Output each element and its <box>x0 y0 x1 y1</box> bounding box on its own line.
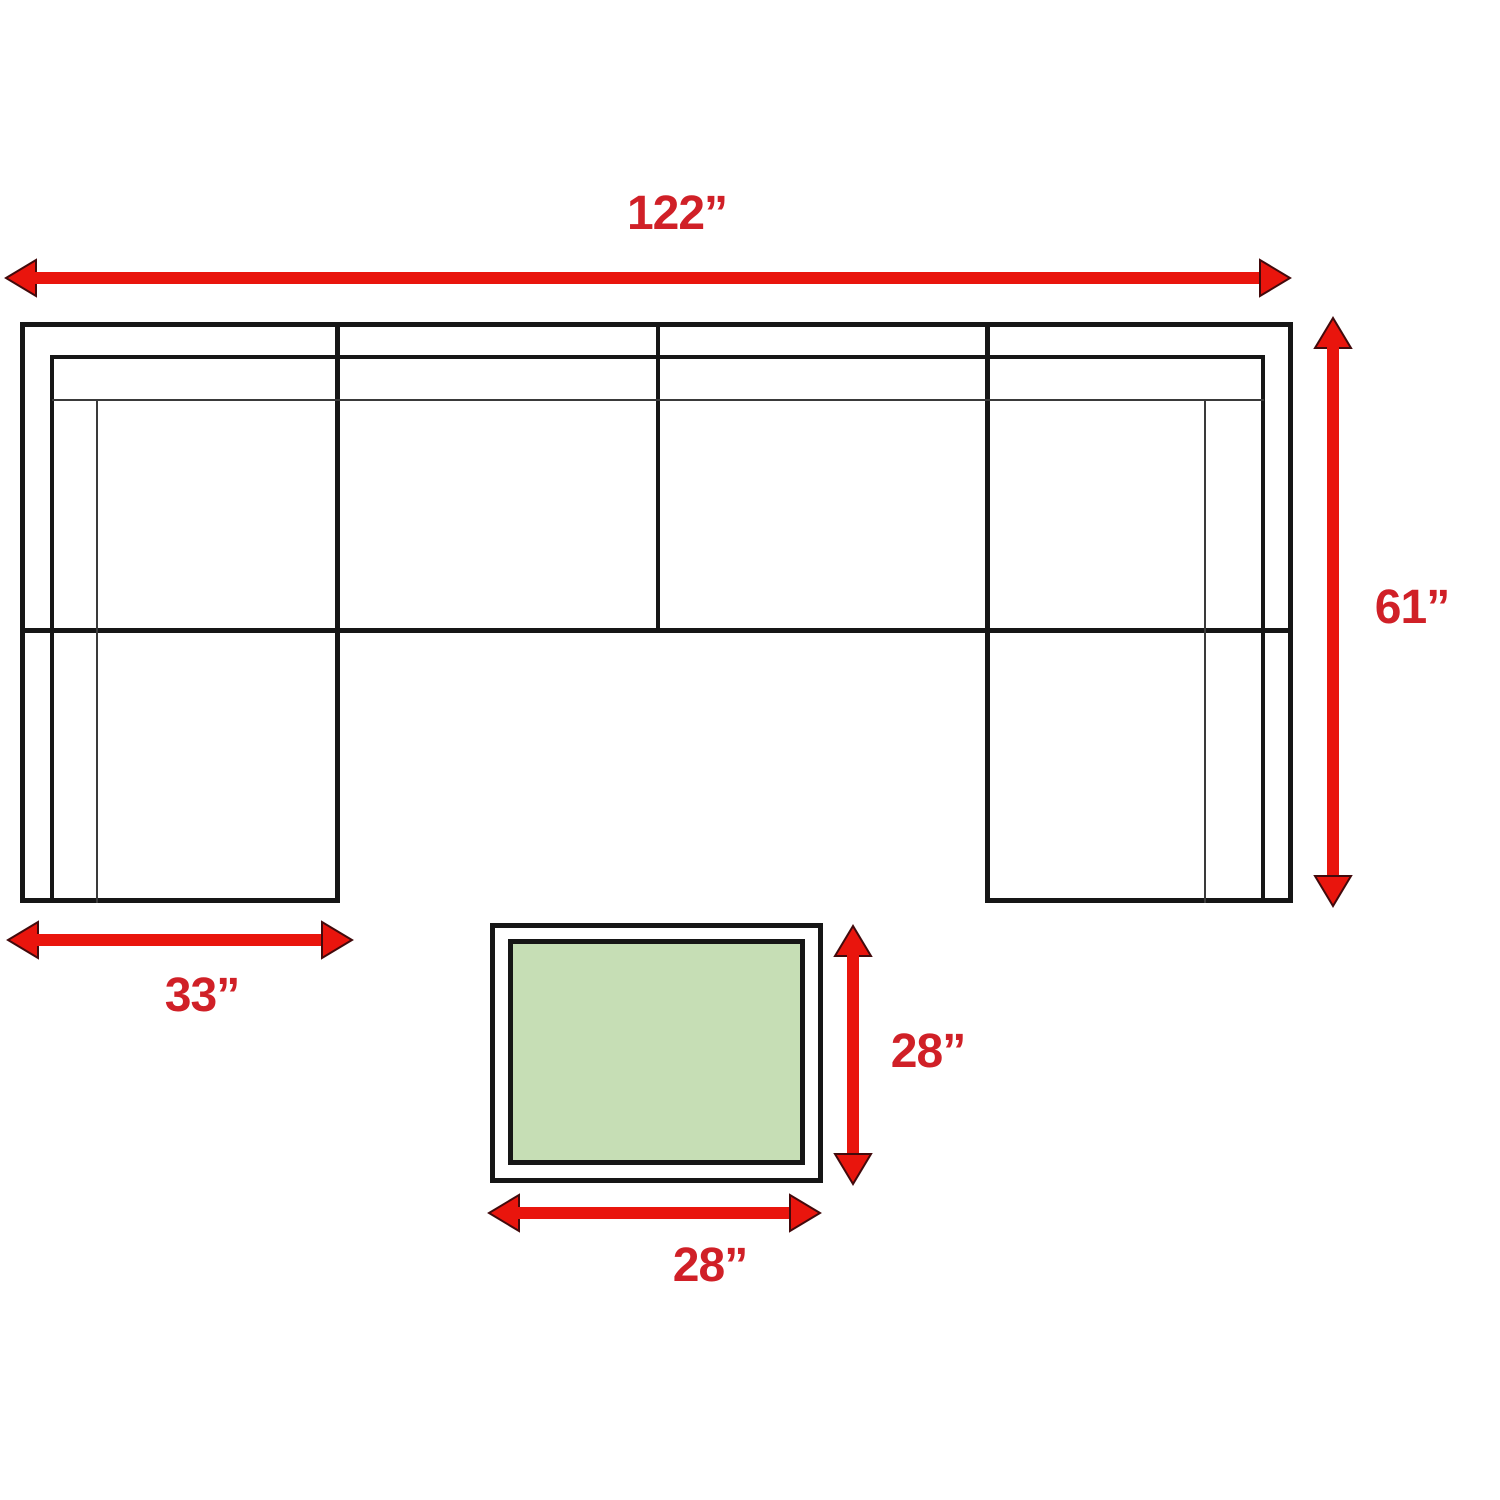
arrow-shaft <box>30 272 1266 284</box>
sofa-width-label: 122” <box>597 190 757 238</box>
sofa-width-arrow <box>4 256 1292 300</box>
left-chaise-bottom-edge <box>20 898 340 903</box>
arrow-shaft <box>513 1207 796 1219</box>
arrow-shaft <box>1327 342 1339 882</box>
arrowhead-right-icon <box>790 1195 820 1231</box>
sofa-depth-arrow <box>1311 316 1355 908</box>
seat-line-right <box>1204 399 1206 903</box>
seat-line-top <box>52 399 1264 401</box>
arrow-shaft <box>32 934 328 946</box>
diagram-canvas: 122” 61” 33” 28” 28” <box>0 0 1500 1500</box>
sofa-outer-left-edge <box>20 322 25 903</box>
right-chaise-bottom-edge <box>985 898 1293 903</box>
table-top-surface <box>508 939 805 1165</box>
sofa-depth-label: 61” <box>1352 584 1472 632</box>
table-width-label: 28” <box>630 1242 790 1290</box>
armrest-inner-right-edge <box>1261 355 1265 903</box>
table-depth-label: 28” <box>858 1028 998 1076</box>
chaise-width-label: 33” <box>122 972 282 1020</box>
section-divider-left <box>335 322 340 903</box>
chaise-width-arrow <box>6 918 354 962</box>
sofa-outer-right-edge <box>1288 322 1293 903</box>
table-width-arrow <box>487 1191 822 1235</box>
arrowhead-down-icon <box>1315 876 1351 906</box>
arrowhead-right-icon <box>322 922 352 958</box>
arrowhead-right-icon <box>1260 260 1290 296</box>
section-divider-right <box>985 322 990 903</box>
backrest-inner-top-edge <box>50 355 1265 359</box>
arrowhead-down-icon <box>835 1154 871 1184</box>
section-divider-middle <box>656 322 660 633</box>
armrest-inner-left-edge <box>50 355 54 903</box>
seat-line-left <box>96 399 98 903</box>
